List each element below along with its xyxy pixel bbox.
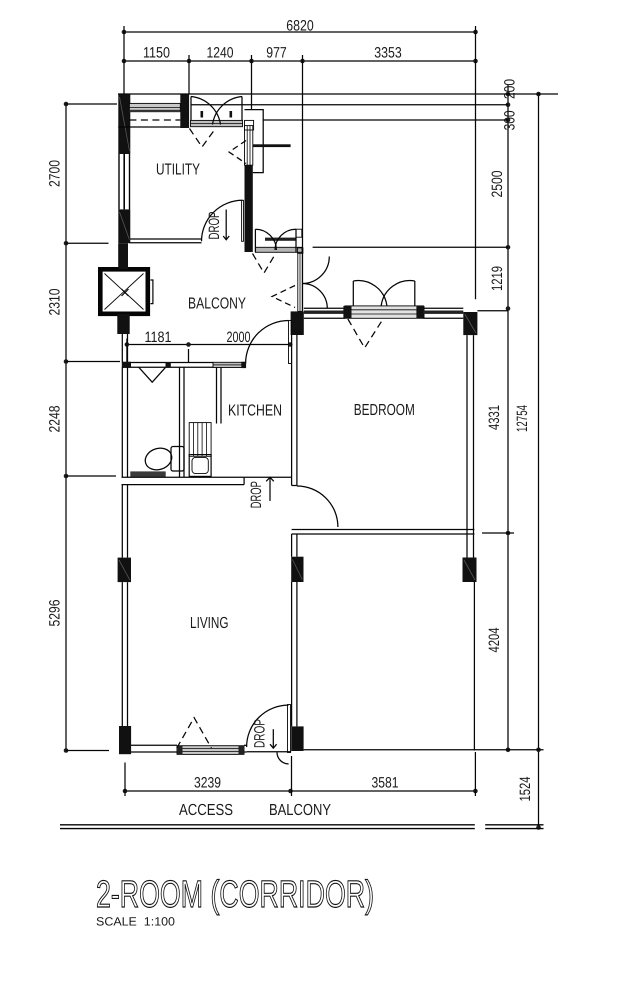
svg-text:UTILITY: UTILITY bbox=[156, 162, 200, 179]
svg-text:LIVING: LIVING bbox=[190, 615, 229, 632]
svg-text:2000: 2000 bbox=[227, 329, 251, 346]
svg-text:3239: 3239 bbox=[194, 775, 221, 792]
svg-text:2500: 2500 bbox=[489, 171, 506, 198]
svg-text:1219: 1219 bbox=[489, 266, 506, 291]
svg-text:4331: 4331 bbox=[486, 405, 503, 430]
svg-text:1240: 1240 bbox=[207, 45, 234, 62]
svg-text:977: 977 bbox=[266, 45, 287, 62]
svg-text:6820: 6820 bbox=[286, 18, 314, 35]
svg-text:3581: 3581 bbox=[372, 775, 399, 792]
svg-text:2700: 2700 bbox=[47, 160, 64, 187]
svg-text:4204: 4204 bbox=[486, 628, 503, 653]
svg-text:SCALE 1:100: SCALE 1:100 bbox=[96, 915, 175, 929]
svg-text:DROP: DROP bbox=[252, 719, 269, 748]
svg-text:1150: 1150 bbox=[143, 45, 170, 62]
svg-text:12754: 12754 bbox=[514, 405, 531, 432]
svg-text:2310: 2310 bbox=[47, 289, 64, 316]
svg-text:2248: 2248 bbox=[47, 406, 64, 433]
svg-text:DROP: DROP bbox=[206, 212, 223, 240]
svg-text:5296: 5296 bbox=[47, 600, 64, 627]
svg-text:BALCONY: BALCONY bbox=[269, 802, 331, 819]
svg-text:3353: 3353 bbox=[374, 45, 402, 62]
svg-text:BALCONY: BALCONY bbox=[188, 296, 246, 313]
svg-text:2-ROOM (CORRIDOR): 2-ROOM (CORRIDOR) bbox=[96, 874, 374, 916]
svg-text:1524: 1524 bbox=[517, 777, 534, 802]
svg-text:DROP: DROP bbox=[248, 481, 265, 508]
svg-text:200: 200 bbox=[502, 79, 519, 99]
svg-text:1181: 1181 bbox=[145, 329, 172, 346]
svg-text:KITCHEN: KITCHEN bbox=[228, 403, 282, 420]
svg-text:BEDROOM: BEDROOM bbox=[354, 402, 415, 419]
svg-text:ACCESS: ACCESS bbox=[179, 802, 233, 819]
